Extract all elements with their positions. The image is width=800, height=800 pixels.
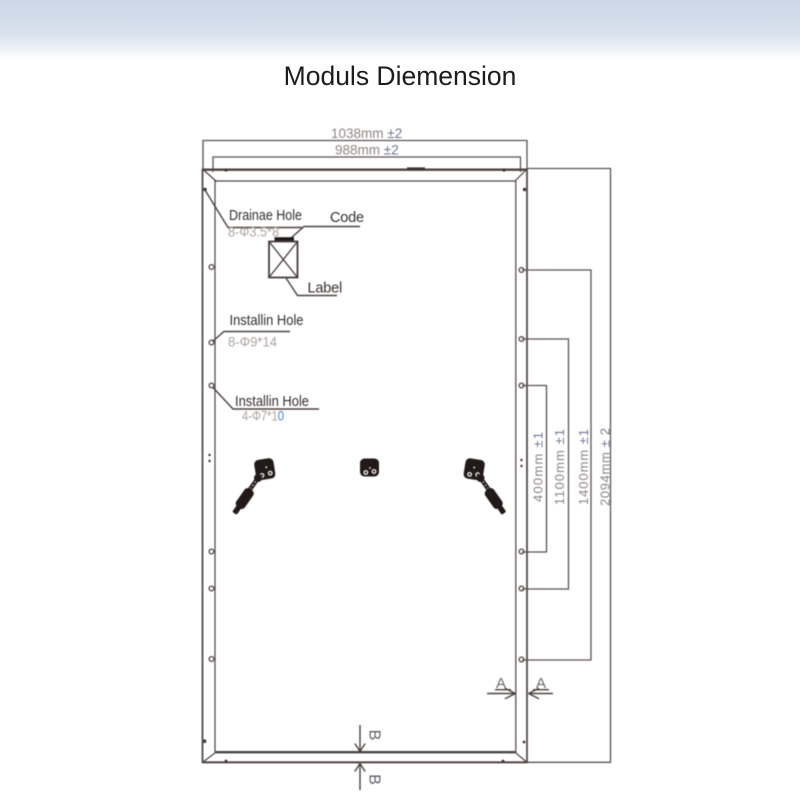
svg-text:Installin Hole: Installin Hole — [230, 313, 304, 329]
svg-text:4-Φ7*10: 4-Φ7*10 — [242, 409, 284, 424]
svg-text:A: A — [496, 675, 506, 692]
svg-text:2094mm ± 2: 2094mm ± 2 — [598, 428, 613, 506]
svg-text:400mm ±1: 400mm ±1 — [531, 432, 546, 502]
svg-text:Code: Code — [330, 210, 364, 226]
svg-text:1400mm ±1: 1400mm ±1 — [576, 429, 591, 505]
svg-text:1038mm ±2: 1038mm ±2 — [331, 126, 402, 141]
svg-text:8-Φ3.5*8: 8-Φ3.5*8 — [228, 225, 279, 240]
svg-text:988mm ±2: 988mm ±2 — [335, 143, 399, 158]
svg-text:A: A — [536, 675, 546, 692]
svg-text:1100mm ±1: 1100mm ±1 — [552, 429, 567, 505]
svg-text:Label: Label — [308, 281, 342, 297]
svg-text:8-Φ9*14: 8-Φ9*14 — [228, 335, 277, 350]
svg-text:B: B — [366, 774, 383, 785]
svg-text:B: B — [366, 730, 383, 741]
svg-text:Drainae Hole: Drainae Hole — [229, 208, 302, 224]
